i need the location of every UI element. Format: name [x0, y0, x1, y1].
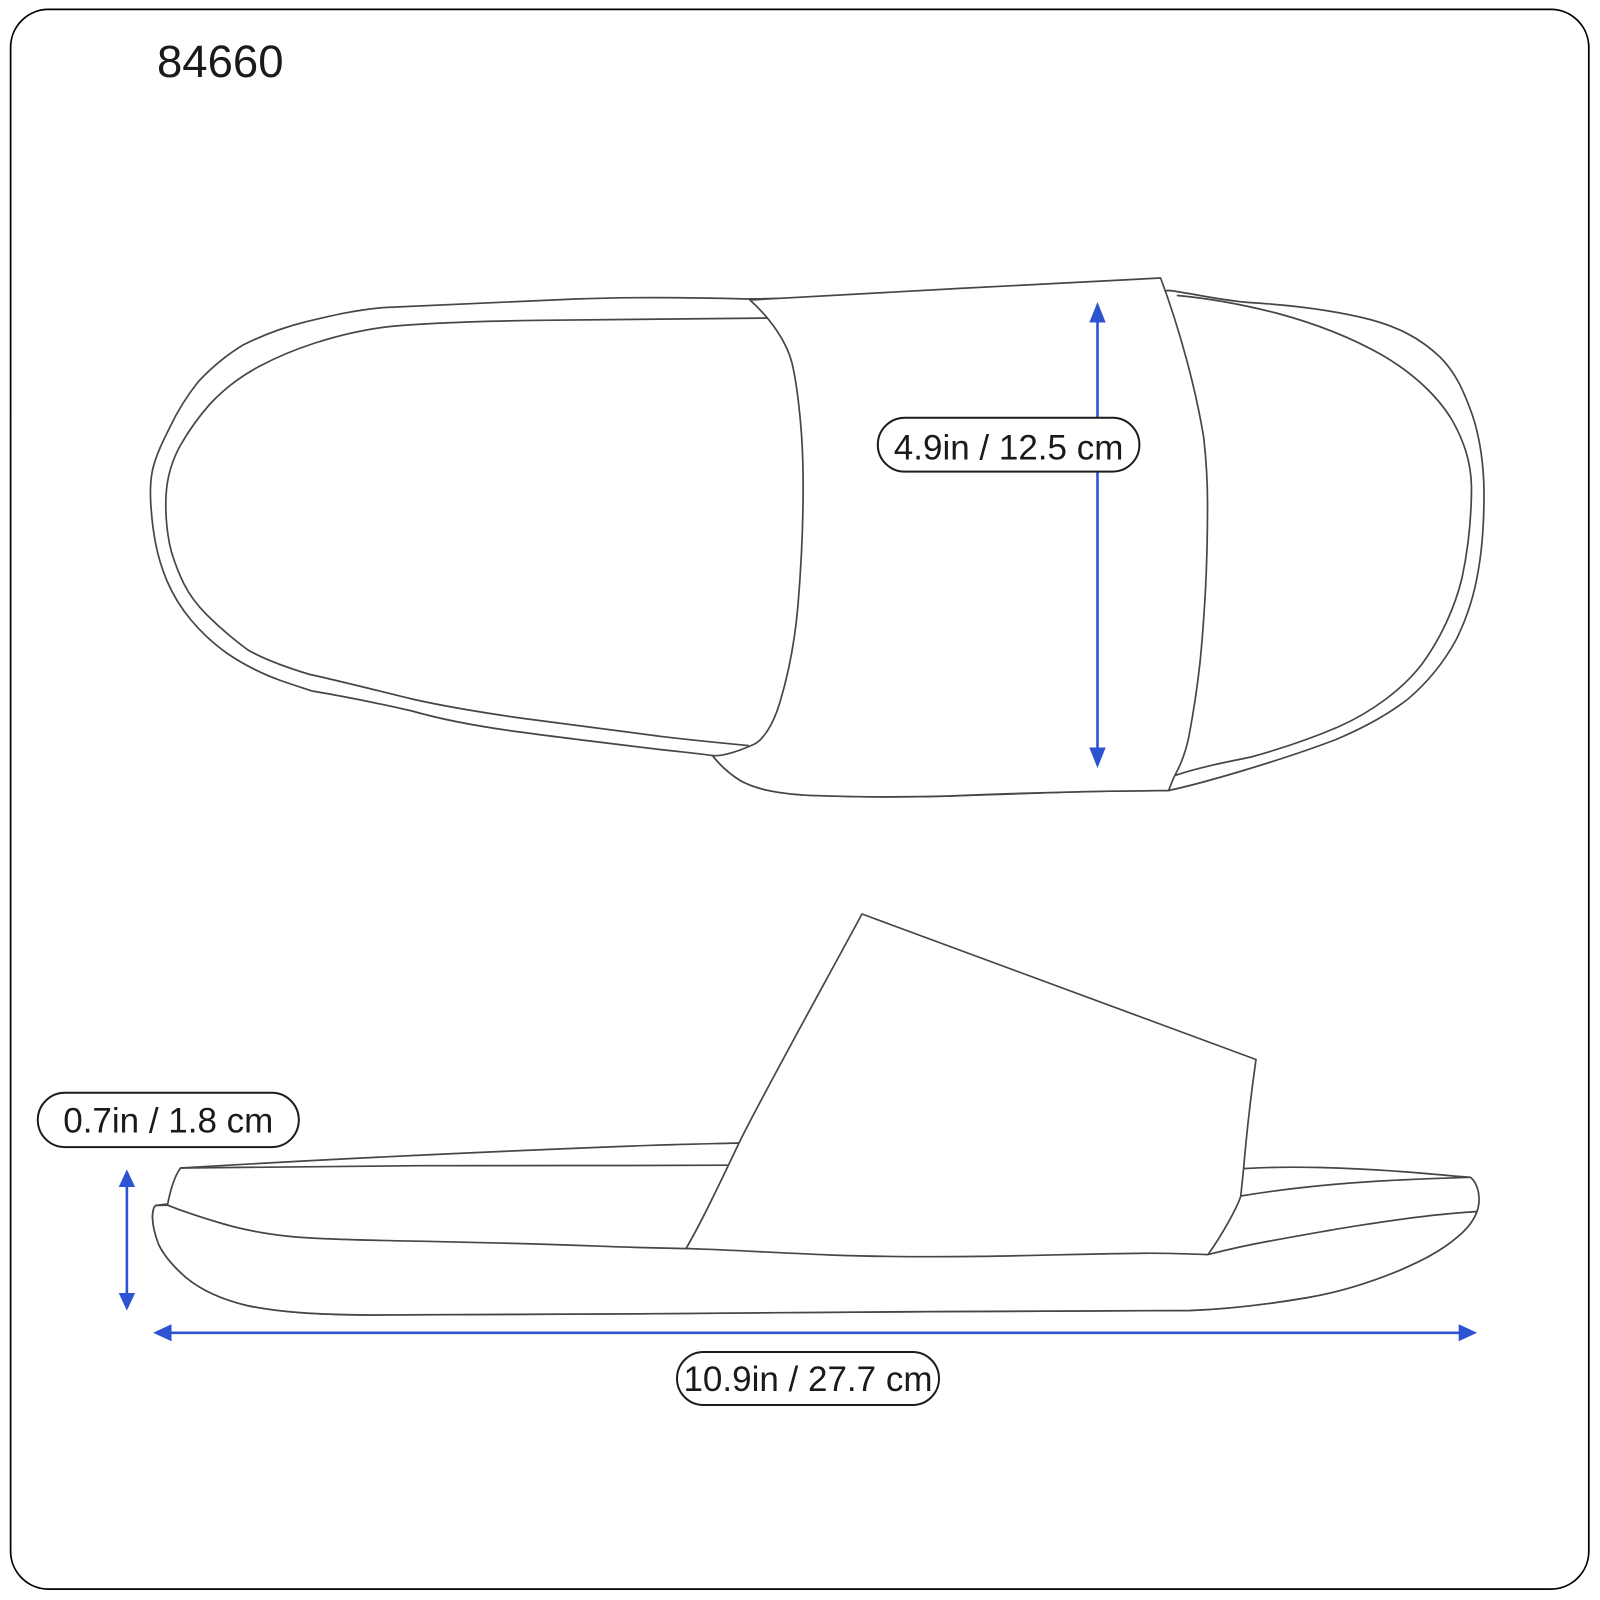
svg-text:4.9in / 12.5 cm: 4.9in / 12.5 cm [894, 429, 1124, 468]
svg-text:84660: 84660 [157, 36, 284, 87]
svg-text:10.9in / 27.7 cm: 10.9in / 27.7 cm [683, 1360, 932, 1399]
svg-text:0.7in / 1.8 cm: 0.7in / 1.8 cm [63, 1102, 273, 1141]
